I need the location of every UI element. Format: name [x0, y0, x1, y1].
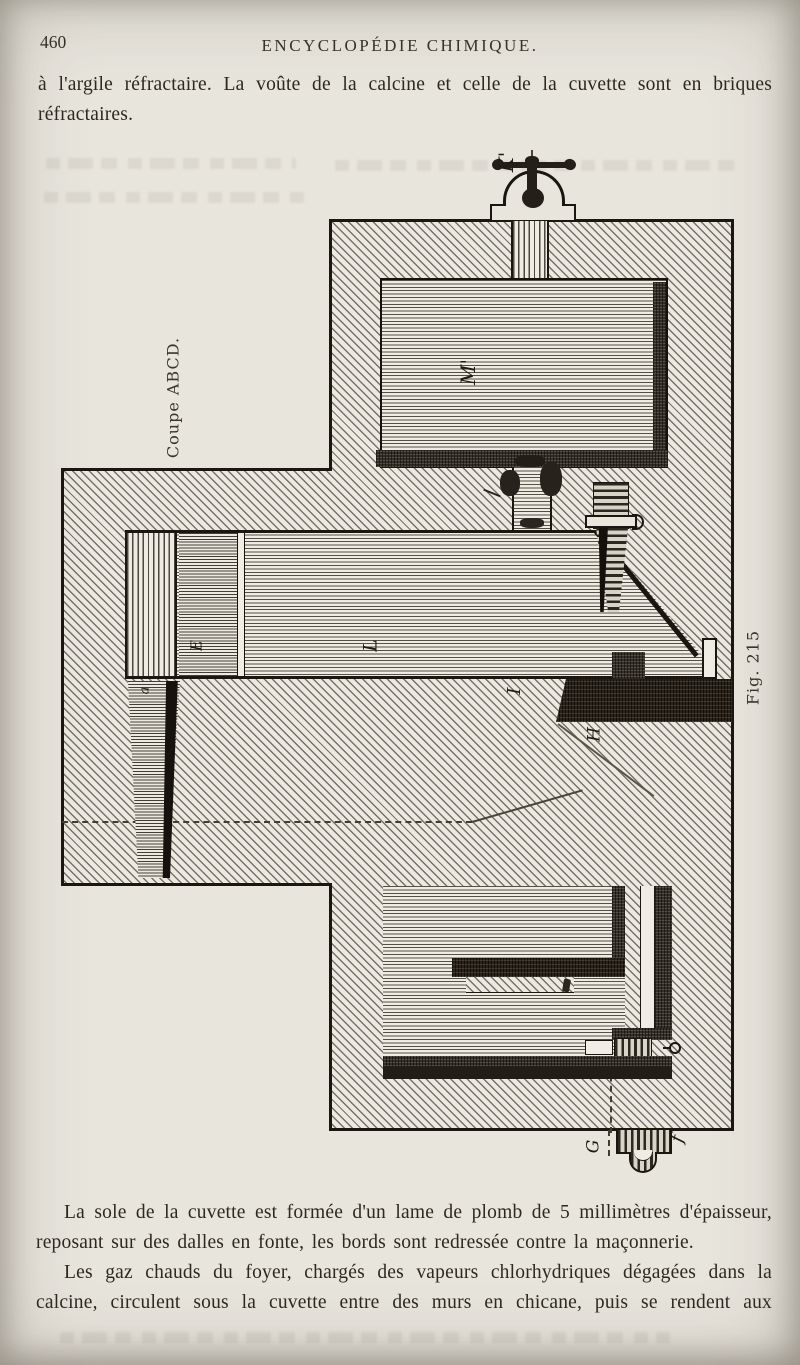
text-line: à l'argile réfractaire. La voûte de la c…	[38, 70, 772, 100]
figure-label-M: M'	[458, 354, 478, 390]
white-channel	[640, 886, 655, 1032]
white-slot	[585, 1040, 613, 1055]
chamber-m-inner-right-band	[653, 282, 666, 452]
wall-divider	[237, 533, 245, 676]
figure-label-L: L	[362, 631, 381, 661]
sole-band-upper	[383, 1056, 672, 1066]
text-line: reposant sur des dalles en fonte, les bo…	[36, 1228, 772, 1258]
figure-label-I: I	[506, 679, 524, 703]
lintel-band	[556, 679, 732, 722]
chamber-m-prime	[380, 278, 668, 468]
dark-block	[612, 652, 645, 680]
damper-flange	[585, 515, 637, 528]
valve-seat-blotch	[520, 518, 544, 528]
text-line: calcine, circulent sous la cuvette entre…	[36, 1288, 772, 1318]
figure-caption: Fig. 215	[744, 618, 763, 718]
outlet-centerline-dash	[608, 1130, 610, 1156]
ring-tail	[663, 1047, 670, 1049]
figure-outline	[329, 219, 332, 471]
bleedthrough-smudge	[46, 158, 296, 169]
bottom-paragraph-1: La sole de la cuvette est formée d'un la…	[36, 1198, 772, 1258]
dark-column	[655, 886, 672, 1032]
sole-band-lower	[383, 1066, 672, 1079]
ring-fitting	[669, 1042, 681, 1054]
valve-shaft	[511, 221, 549, 283]
bottom-paragraph-2: Les gaz chauds du foyer, chargés des vap…	[36, 1258, 772, 1318]
baffle-step	[466, 977, 574, 993]
figure-outline	[329, 883, 332, 1131]
white-step-block	[702, 638, 717, 679]
figure-label-G: G	[586, 1135, 603, 1159]
brick-stack	[125, 531, 177, 678]
text-line: La sole de la cuvette est formée d'un la…	[36, 1198, 772, 1228]
text-line: Les gaz chauds du foyer, chargés des vap…	[36, 1258, 772, 1288]
valve-hub	[525, 156, 539, 168]
valve-seat-blotch	[540, 462, 562, 496]
bleedthrough-smudge	[44, 192, 312, 203]
figure-label-a: a	[139, 680, 152, 702]
figure-label-H: H	[587, 722, 604, 748]
figure-outline	[61, 468, 64, 886]
text-line: réfractaires.	[38, 100, 772, 130]
figure-outline	[62, 883, 332, 886]
figure-label-E: E	[190, 633, 205, 659]
wall-section-e	[179, 533, 237, 676]
reference-dashed-line	[62, 821, 472, 823]
scanned-book-page: 460 ENCYCLOPÉDIE CHIMIQUE. à l'argile ré…	[0, 0, 800, 1365]
baffle-band	[452, 958, 625, 977]
bleedthrough-smudge	[60, 1332, 670, 1343]
figure-outline	[61, 468, 331, 471]
section-label: Coupe ABCD.	[164, 328, 183, 468]
figure-label-K: K'	[496, 146, 516, 178]
figure-label-f: f	[667, 1127, 690, 1151]
upper-flue-right-band	[612, 886, 625, 964]
running-header: ENCYCLOPÉDIE CHIMIQUE.	[0, 36, 800, 56]
valve-seat-blotch	[515, 455, 545, 467]
figure-outline	[731, 219, 734, 1131]
top-paragraph: à l'argile réfractaire. La voûte de la c…	[38, 70, 772, 130]
valve-seat-blotch	[500, 470, 520, 496]
